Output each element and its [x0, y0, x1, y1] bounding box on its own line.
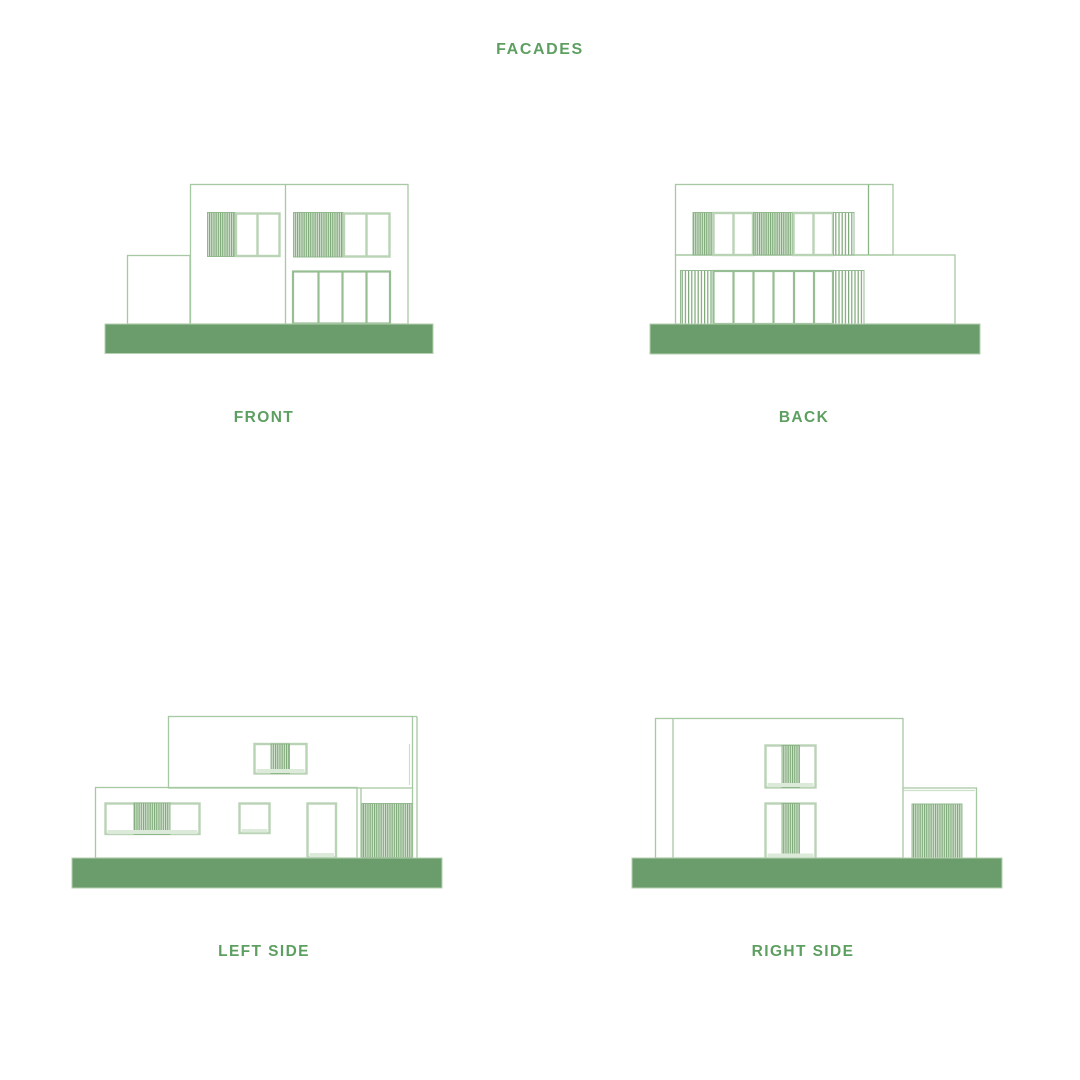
right-side-upper-window — [766, 746, 816, 788]
right-side-ground-bar — [632, 858, 1002, 888]
back-elevation-drawing — [640, 180, 990, 358]
page-title: FACADES — [0, 41, 1080, 59]
back-upper-window-band — [693, 213, 854, 256]
right-side-label: RIGHT SIDE — [673, 943, 933, 961]
front-upper-right-window — [294, 213, 390, 258]
right-side-elevation-drawing — [620, 708, 1012, 892]
left-side-small-window — [240, 804, 270, 834]
left-side-entry-door — [308, 804, 337, 858]
right-side-garage-louver — [912, 804, 962, 858]
left-side-elevation-drawing — [60, 708, 452, 892]
front-label: FRONT — [134, 409, 394, 427]
front-elevation-drawing — [100, 180, 440, 358]
front-upper-left-window — [208, 213, 280, 257]
back-label: BACK — [674, 409, 934, 427]
right-side-lower-door — [766, 804, 816, 859]
left-side-label: LEFT SIDE — [134, 943, 394, 961]
left-side-lower-left-window — [106, 803, 200, 835]
left-side-ground-bar — [72, 858, 442, 888]
front-ground-bar — [105, 324, 433, 354]
left-side-upper-window — [255, 744, 307, 774]
back-lower-window-band — [681, 271, 865, 325]
front-sliding-door — [293, 272, 390, 324]
facades-sheet: FACADES — [0, 0, 1080, 1080]
left-side-louvered-panel — [362, 804, 412, 858]
back-ground-bar — [650, 324, 980, 354]
